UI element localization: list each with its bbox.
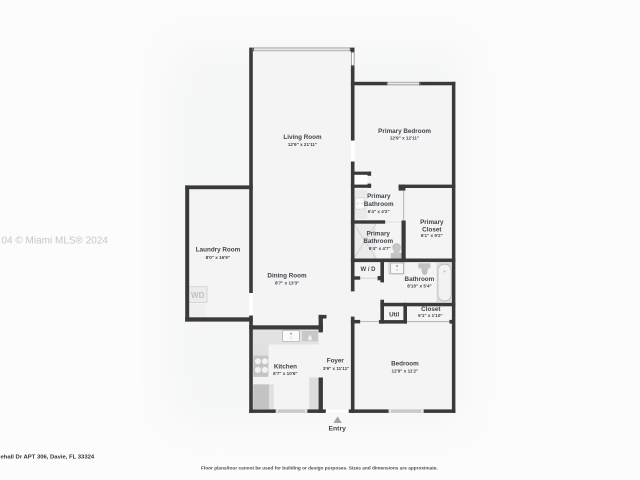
svg-text:6'4" x 4'2": 6'4" x 4'2" <box>368 209 390 214</box>
svg-text:Closet: Closet <box>421 306 441 313</box>
svg-text:Living Room: Living Room <box>283 134 322 141</box>
svg-text:8'7" x 13'3": 8'7" x 13'3" <box>275 281 299 286</box>
svg-text:8'0" x 16'9": 8'0" x 16'9" <box>206 255 230 260</box>
svg-text:12'9" x 12'11": 12'9" x 12'11" <box>390 136 419 141</box>
svg-text:Floor plans/tour cannot be use: Floor plans/tour cannot be used for buil… <box>201 466 438 472</box>
svg-text:Dining Room: Dining Room <box>267 273 307 280</box>
svg-text:W / D: W / D <box>361 267 377 273</box>
svg-text:Foyer: Foyer <box>327 358 345 365</box>
svg-text:6'1" x 9'2": 6'1" x 9'2" <box>421 233 443 238</box>
svg-text:12'9" x 11'2": 12'9" x 11'2" <box>392 369 419 374</box>
svg-text:8'7" x 10'6": 8'7" x 10'6" <box>273 371 297 376</box>
svg-text:Primary Bedroom: Primary Bedroom <box>378 128 431 135</box>
svg-text:8'10" x 5'4": 8'10" x 5'4" <box>407 283 431 288</box>
svg-text:12'9" x 21'11": 12'9" x 21'11" <box>288 142 317 147</box>
svg-text:Bathroom: Bathroom <box>364 201 394 208</box>
svg-text:3'9" x 11'11": 3'9" x 11'11" <box>323 366 349 371</box>
svg-text:Bathroom: Bathroom <box>405 276 435 283</box>
svg-text:Bedroom: Bedroom <box>391 360 419 367</box>
svg-text:Kitchen: Kitchen <box>274 363 297 370</box>
svg-text:Util: Util <box>389 311 399 318</box>
svg-text:WD: WD <box>191 291 205 300</box>
svg-text:6'4" x 4'7": 6'4" x 4'7" <box>369 246 391 251</box>
svg-text:Primary: Primary <box>366 231 390 238</box>
svg-text:Entry: Entry <box>329 426 347 433</box>
svg-text:Bathroom: Bathroom <box>363 238 393 245</box>
svg-text:04 © Miami MLS® 2024: 04 © Miami MLS® 2024 <box>2 235 109 246</box>
svg-text:Primary: Primary <box>367 193 391 200</box>
svg-text:ehall Dr APT 306, Davie, FL 33: ehall Dr APT 306, Davie, FL 33324 <box>1 455 95 461</box>
svg-text:6'1" x 1'10": 6'1" x 1'10" <box>418 313 442 318</box>
svg-text:Primary: Primary <box>420 219 444 226</box>
svg-text:Laundry Room: Laundry Room <box>196 246 241 253</box>
